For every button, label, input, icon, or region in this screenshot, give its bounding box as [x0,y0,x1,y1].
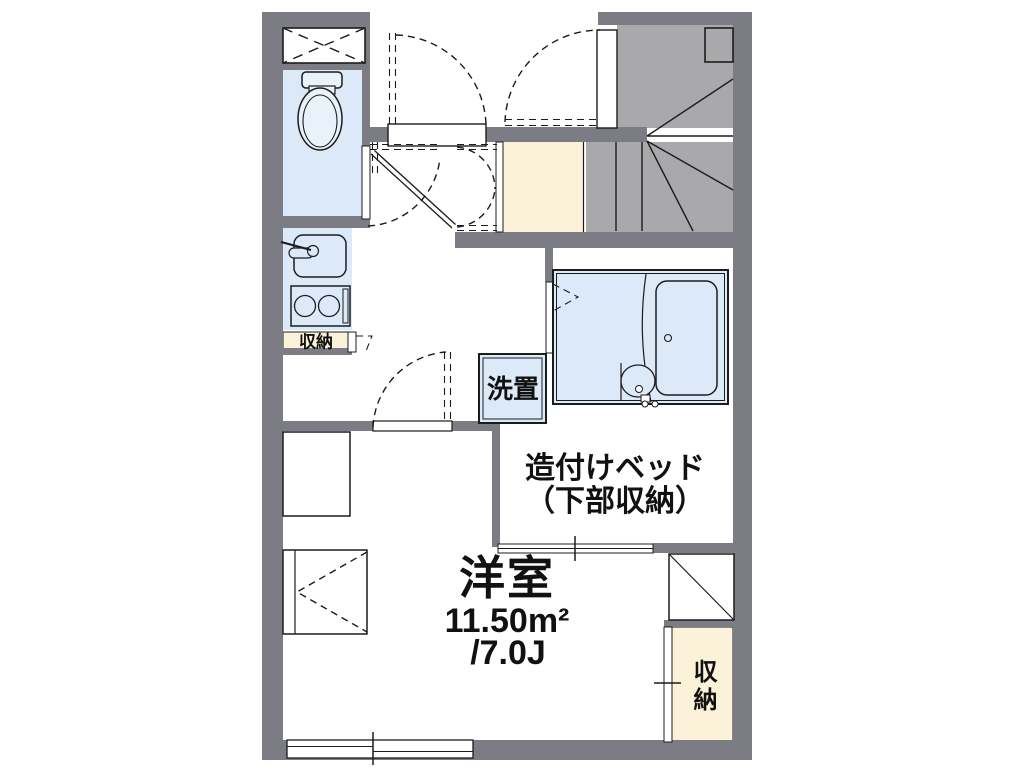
bed-label-line2: （下部収納） [525,487,705,517]
kitchen-faucet-head [308,246,319,257]
room-door-swing [373,352,446,427]
stove-grill [343,289,348,323]
stove-burner-right [319,296,340,317]
wall-right [733,12,752,760]
bifold-arc-lower [457,189,495,227]
room-area-jo-label: /7.0J [470,636,546,670]
entry-door-right-closed [505,120,597,126]
bifold-arc-upper [457,147,495,189]
toilet-fixture [298,72,342,150]
storage-door-swing [356,336,372,351]
wall-top-right [598,12,752,25]
wall-left [262,12,283,760]
wall-under-xbox [283,63,365,70]
stair-floor-lower [586,142,733,232]
wall-top-left [262,12,368,28]
genkan-floor [503,142,583,232]
entry-door-left-open [390,33,396,124]
toilet-bowl [298,88,342,150]
room-door-leaf [373,421,452,431]
room-area-m2-label: 11.50m² [445,604,570,638]
entry-door-left-leaf [388,124,486,146]
bath-door-strip [546,282,553,353]
toilet-door-leaf [371,151,456,229]
stove-burner-left [295,296,316,317]
faucet-knob-2 [652,401,658,407]
closet-label: 収納 [690,659,714,715]
kitchen-storage-door [348,332,356,352]
entry-door-right-swing [505,30,600,122]
room-name-label: 洋室 [459,555,555,601]
bottom-window [287,740,473,758]
wall-bed-bottom [653,543,733,553]
kitchen-storage-label: 収納 [299,334,333,351]
wall-closet-top [664,620,733,627]
closet-door-strip [664,627,672,742]
wall-room-top-left [262,421,373,431]
wall-room-divider [492,421,500,547]
entry-door-right-leaf [597,30,617,128]
hall-shelf-dashed [370,142,437,177]
faucet-knob-1 [642,401,648,407]
genkan-step-strip [496,142,503,232]
bed-label-line1: 造付けベッド [525,454,705,484]
laundry-label: 洗置 [487,376,539,402]
wall-bath-left [545,248,553,282]
washbasin-drain [636,386,643,393]
furniture-box [283,432,350,516]
floorplan-canvas: 洋室 11.50m² /7.0J 造付けベッド （下部収納） 洗置 収納 収納 [0,0,1016,772]
toilet-door-gap [362,146,370,219]
bathtub [656,281,717,395]
toilet-door-swing [368,158,440,226]
stair-landing-square [705,28,733,62]
room-door-open [445,352,451,421]
entry-door-left-swing [396,35,486,124]
wall-stair-bottom [455,232,752,248]
wall-toilet-bottom [281,216,370,228]
